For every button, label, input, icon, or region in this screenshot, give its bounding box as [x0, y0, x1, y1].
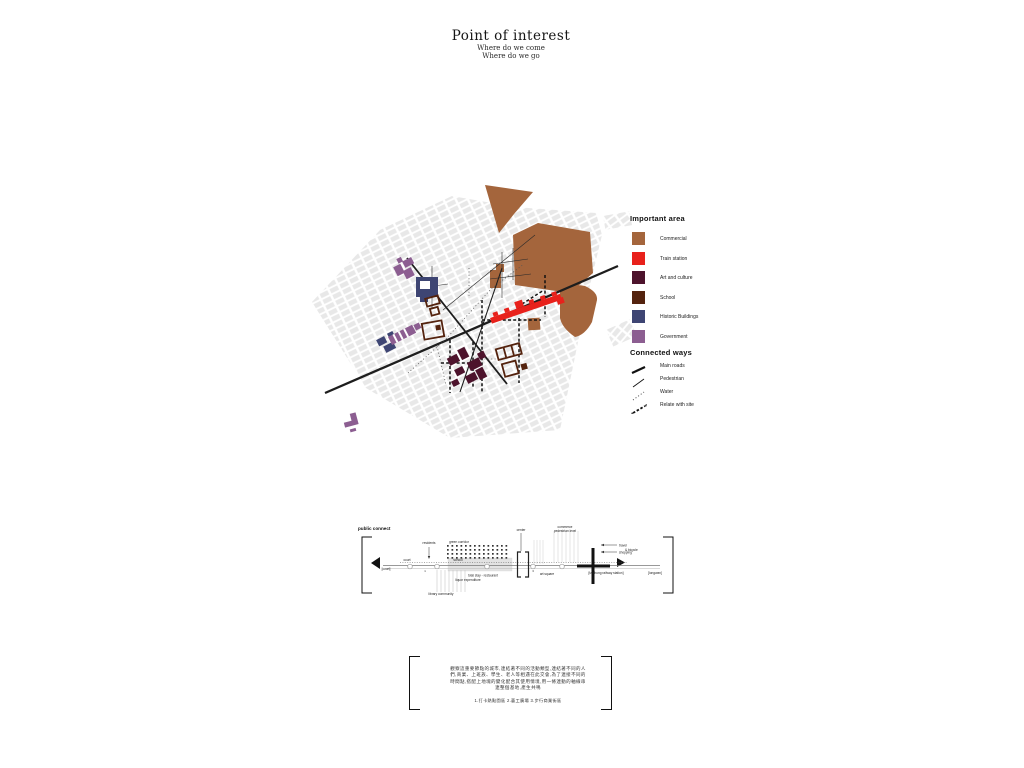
connected-ways-title: Connected ways	[630, 348, 692, 357]
school-label-diagram: school	[453, 558, 463, 562]
stop-bracket-left	[518, 552, 522, 577]
header: Point of interest Where do we come Where…	[0, 28, 1022, 60]
retail-label: total stay - restaurant	[468, 574, 498, 578]
relate-with-site-line-icon	[631, 401, 647, 411]
government-label: Government	[660, 334, 688, 340]
court-label: court	[403, 558, 410, 562]
poster-canvas: Point of interest Where do we come Where…	[0, 0, 1024, 768]
subtitle-line-1: Where do we come	[0, 44, 1022, 52]
train-station-label: Train station	[660, 256, 687, 262]
commerce-label-2: pedestrian level	[554, 529, 577, 533]
school-label: School	[660, 295, 675, 301]
site-map	[300, 180, 640, 450]
page-title: Point of interest	[0, 28, 1022, 44]
commercial-building-center-top	[496, 264, 504, 272]
liquor-label: liquor expenditure	[455, 578, 481, 582]
school-swatch	[632, 291, 645, 304]
water-line-icon	[631, 388, 647, 398]
railway-cross-icon	[577, 548, 610, 584]
center-label: center	[517, 528, 527, 532]
commercial-swatch	[632, 232, 645, 245]
main-roads-line-icon	[631, 362, 647, 372]
pedestrian-label: Pedestrian	[660, 376, 684, 382]
government-swatch	[632, 330, 645, 343]
left-arrow-icon	[371, 557, 380, 569]
green-corridor-grid	[447, 545, 507, 559]
flow-arrows	[601, 544, 617, 553]
historic-label: Historic Buildings	[660, 314, 698, 320]
art-culture-label: Art and culture	[660, 275, 693, 281]
hatch-center	[534, 540, 543, 564]
historic-swatch	[632, 310, 645, 323]
art-square-label: art square	[540, 572, 555, 576]
footer-paragraph: 觀察這重要節點的城市,連結著不同的活動類型,連結著不同的人 們,商業、上班族、學…	[448, 666, 588, 691]
subtitle-line-2: Where do we go	[0, 52, 1022, 60]
water-label: Water	[660, 389, 673, 395]
diagram-right-bracket	[663, 537, 673, 593]
diagram-title: public connect	[358, 526, 391, 531]
hatch-commerce	[554, 531, 578, 562]
main-roads-label: Main roads	[660, 363, 685, 369]
residents-label: residents	[423, 541, 436, 545]
green-corridor-label: green corridor	[449, 540, 470, 544]
bicycle-label: & bicycle	[625, 548, 638, 552]
footer-left-bracket	[409, 656, 420, 710]
footer-line-2: 們,商業、上班族、學生、老人等相遇在此交會,為了連接不同的	[448, 672, 588, 678]
footer-caption: 1.打卡熱點園區 2.藝工廣場 3.步行商業街區	[430, 698, 606, 704]
right-anchor-label: [longwan]	[648, 571, 662, 575]
station-anchor-label: [taichung railway station]	[589, 571, 624, 575]
relate-with-site-label: Relate with site	[660, 402, 694, 408]
stop-bracket-right	[525, 552, 529, 577]
travel-label: travel	[619, 544, 627, 548]
important-area-title: Important area	[630, 214, 685, 223]
commercial-label: Commercial	[660, 236, 687, 242]
train-station-swatch	[632, 252, 645, 265]
public-connect-diagram: public connect	[355, 520, 680, 605]
diagram-left-bracket	[362, 537, 372, 593]
marker-1: 1	[424, 569, 426, 573]
library-label: library community	[429, 592, 454, 596]
marker-3: 3	[532, 569, 534, 573]
axis-nodes	[408, 564, 565, 569]
footer-line-4: 連整個基地,產生共鳴	[448, 685, 588, 691]
pedestrian-line-icon	[631, 375, 647, 385]
residents-leader-arrow	[428, 556, 430, 559]
art-culture-swatch	[632, 271, 645, 284]
footer-line-3: 時間點,搭配上地塊的變化配合其使用情境,用一條連動的軸線串	[448, 679, 588, 685]
left-anchor-label: [court]	[382, 567, 391, 571]
